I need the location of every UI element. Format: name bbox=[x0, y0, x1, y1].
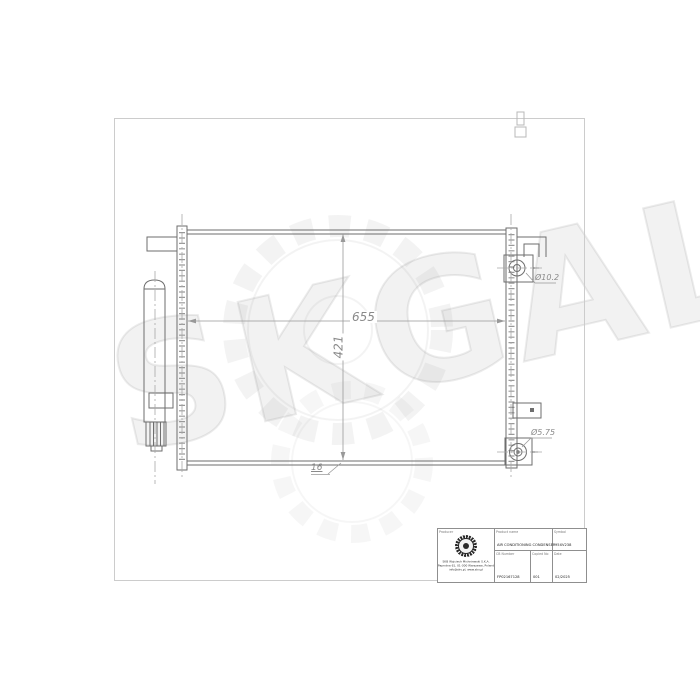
date-value: 02/2025 bbox=[555, 575, 570, 579]
dimension-height-label: 421 bbox=[332, 334, 344, 361]
title-block: Producer SKB Wojciech Michniewski S.K.A.… bbox=[437, 528, 587, 583]
leader-outlet bbox=[522, 438, 531, 447]
copied-no-label: Copied No bbox=[532, 552, 548, 556]
cb-number-cell: CB Number FP02167128 bbox=[495, 551, 531, 582]
date-cell: Date 02/2025 bbox=[553, 551, 586, 582]
title-block-fields: Product name AIR CONDITIONING CONDENSER … bbox=[495, 529, 586, 582]
copied-no-value: 001 bbox=[533, 575, 540, 579]
company-address: SKB Wojciech Michniewski S.K.A. Paprotna… bbox=[438, 560, 494, 572]
date-label: Date bbox=[554, 552, 562, 556]
drier-bottom-bracket bbox=[149, 393, 173, 408]
fold-mark bbox=[515, 112, 526, 137]
title-block-row-top: Product name AIR CONDITIONING CONDENSER … bbox=[495, 529, 586, 551]
right-header-tube bbox=[506, 228, 517, 468]
title-block-producer-cell: Producer SKB Wojciech Michniewski S.K.A.… bbox=[438, 529, 495, 582]
producer-label: Producer bbox=[439, 530, 453, 534]
symbol-value: 95XV238 bbox=[555, 543, 571, 547]
symbol-cell: Symbol 95XV238 bbox=[553, 529, 586, 550]
company-contact: info@skv.pl, www.skv.pl bbox=[438, 568, 494, 572]
dimension-outlet-port-label: Ø5.75 bbox=[531, 429, 555, 437]
drawing-sheet: SKGAL bbox=[0, 0, 700, 700]
dimension-arrows bbox=[188, 234, 505, 460]
symbol-label: Symbol bbox=[554, 530, 566, 534]
product-name-cell: Product name AIR CONDITIONING CONDENSER bbox=[495, 529, 553, 550]
dimension-lines bbox=[188, 234, 556, 475]
product-name-label: Product name bbox=[496, 530, 518, 534]
cb-number-value: FP02167128 bbox=[497, 575, 520, 579]
title-block-row-bottom: CB Number FP02167128 Copied No 001 Date … bbox=[495, 551, 586, 582]
drier-top-bracket bbox=[147, 237, 177, 251]
copied-no-cell: Copied No 001 bbox=[531, 551, 553, 582]
dimension-thickness-label: 16 bbox=[311, 464, 322, 473]
condenser-drawing bbox=[0, 0, 700, 700]
cb-number-label: CB Number bbox=[496, 552, 514, 556]
receiver-drier bbox=[144, 237, 177, 451]
centerlines bbox=[155, 214, 542, 484]
dimension-inlet-port-label: Ø10.2 bbox=[535, 274, 559, 282]
top-mounting-bracket bbox=[517, 237, 546, 257]
dimension-width-label: 655 bbox=[350, 311, 377, 323]
company-stamp-logo-icon bbox=[455, 535, 477, 557]
product-name-value: AIR CONDITIONING CONDENSER bbox=[497, 543, 555, 547]
condenser-core bbox=[187, 230, 506, 465]
drier-valve-block bbox=[146, 422, 166, 446]
